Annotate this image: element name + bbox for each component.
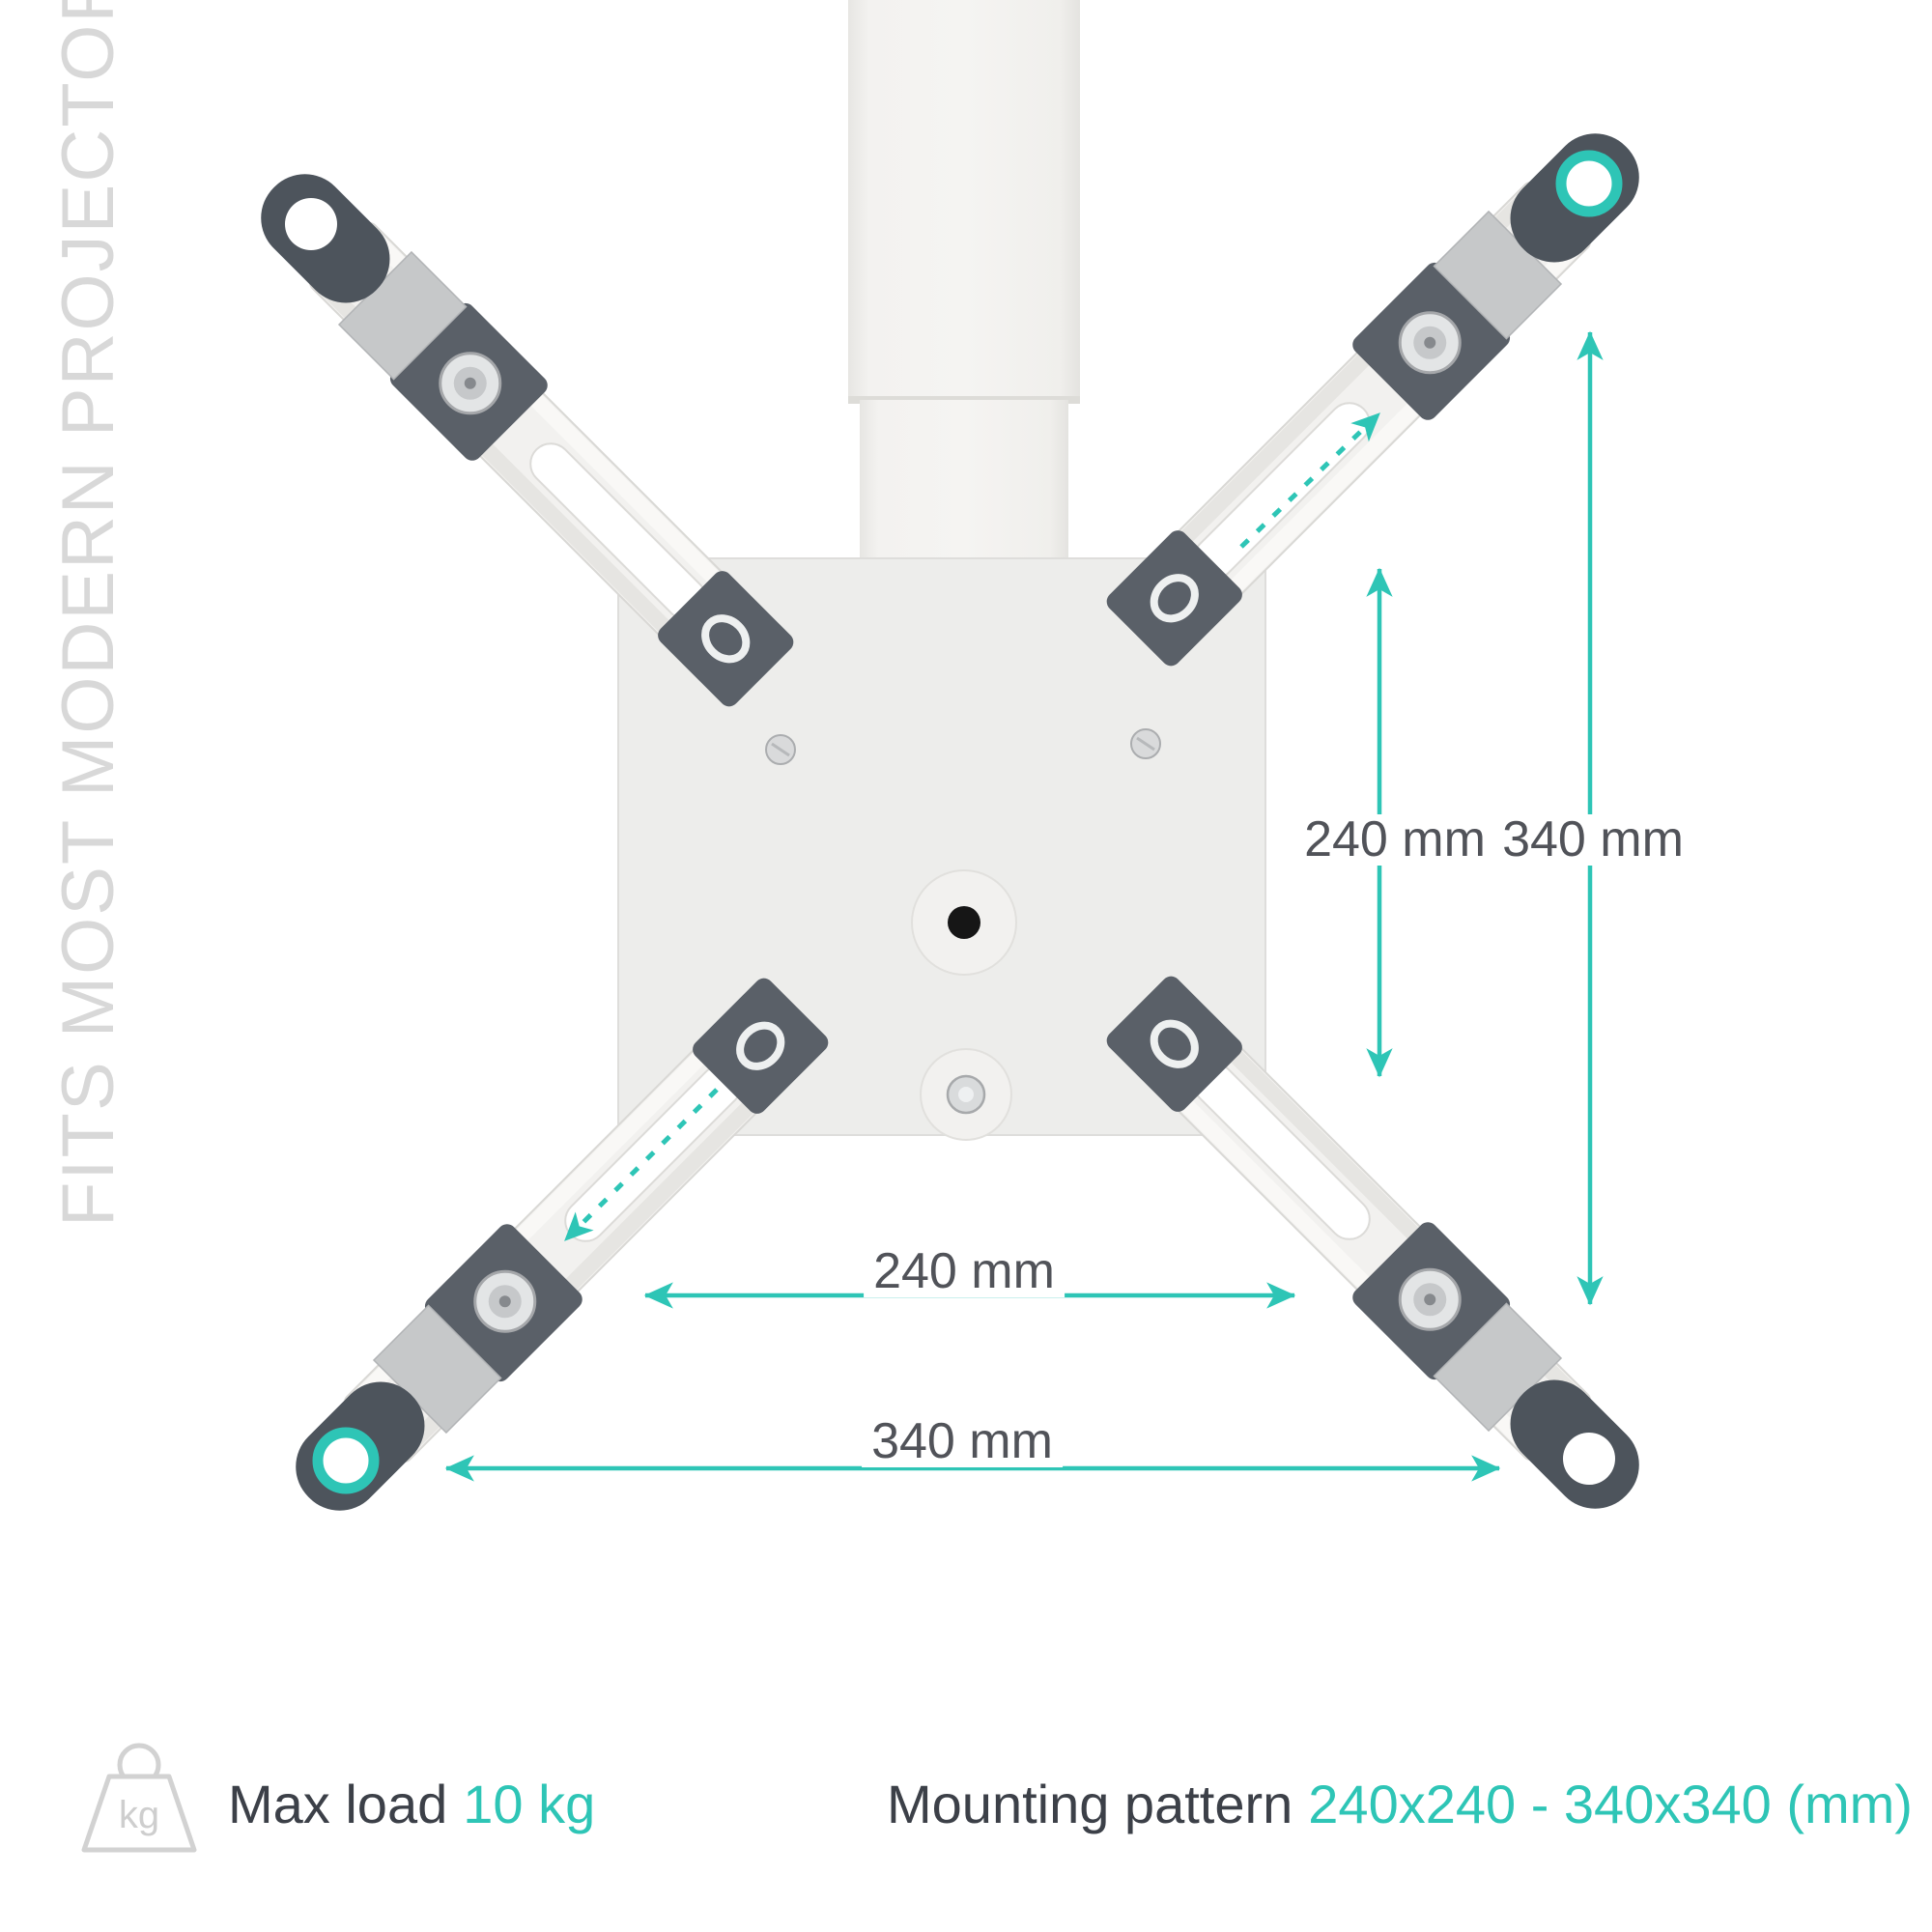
product-illustration: kg bbox=[0, 0, 1932, 1932]
max-load-value: 10 kg bbox=[463, 1774, 595, 1834]
dim-label-horizontal-340: 340 mm bbox=[862, 1416, 1063, 1467]
mount-pole bbox=[848, 0, 1080, 564]
highlighted-hole-bottom-left bbox=[318, 1433, 374, 1489]
dim-label-vertical-240: 240 mm bbox=[1294, 814, 1495, 866]
mounting-pattern-value: 240x240 - 340x340 (mm) bbox=[1308, 1774, 1913, 1834]
max-load-label: Max load bbox=[228, 1774, 447, 1834]
dim-label-horizontal-240: 240 mm bbox=[864, 1246, 1065, 1297]
dim-label-vertical-340: 340 mm bbox=[1492, 814, 1693, 866]
highlighted-hole-top-right bbox=[1561, 156, 1617, 212]
mounting-pattern-label: Mounting pattern bbox=[887, 1774, 1293, 1834]
center-hole bbox=[948, 906, 980, 939]
arm-top-left bbox=[235, 148, 803, 716]
weight-icon-kg-text: kg bbox=[119, 1794, 159, 1836]
weight-icon: kg bbox=[84, 1746, 194, 1850]
mounting-pattern-text: Mounting pattern240x240 - 340x340 (mm) bbox=[887, 1776, 1913, 1833]
max-load-text: Max load10 kg bbox=[228, 1776, 595, 1833]
